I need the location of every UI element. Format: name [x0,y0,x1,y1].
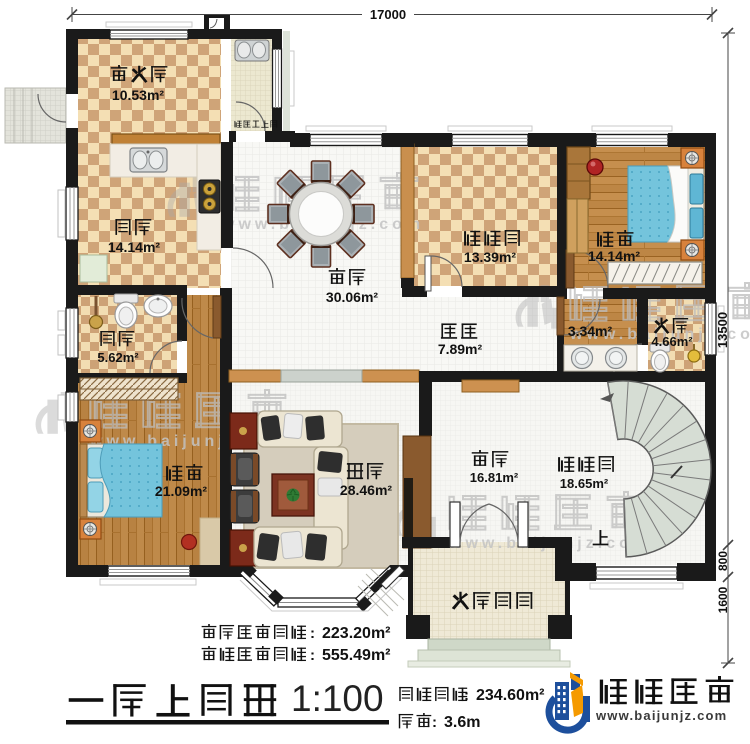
svg-text:14.14m²: 14.14m² [588,248,640,264]
svg-text:13500: 13500 [715,312,730,348]
svg-text:21.09m²: 21.09m² [155,483,207,499]
svg-text:7.89m²: 7.89m² [438,341,483,357]
svg-text:4.66m²: 4.66m² [651,334,693,349]
svg-text:3.6m: 3.6m [444,714,480,731]
svg-text:17000: 17000 [370,7,406,22]
svg-text:3.34m²: 3.34m² [568,323,613,339]
svg-text::: : [464,687,469,704]
svg-text::: : [432,714,437,731]
svg-text:14.14m²: 14.14m² [108,239,160,255]
svg-text:10.53m²: 10.53m² [112,87,164,103]
svg-text:16.81m²: 16.81m² [470,470,519,485]
svg-text::: : [310,625,315,642]
svg-text:28.46m²: 28.46m² [340,482,392,498]
svg-text:1600: 1600 [716,586,730,613]
svg-text:1:100: 1:100 [291,678,384,719]
svg-text:234.60m²: 234.60m² [476,687,545,704]
svg-text:223.20m²: 223.20m² [322,625,391,642]
svg-text::: : [310,647,315,664]
svg-text:13.39m²: 13.39m² [464,249,516,265]
svg-text:800: 800 [716,551,730,571]
svg-text:555.49m²: 555.49m² [322,647,391,664]
svg-text:30.06m²: 30.06m² [326,289,378,305]
svg-text:www.baijunjz.com: www.baijunjz.com [595,708,727,723]
svg-text:5.62m²: 5.62m² [97,350,139,365]
svg-text:18.65m²: 18.65m² [560,476,609,491]
